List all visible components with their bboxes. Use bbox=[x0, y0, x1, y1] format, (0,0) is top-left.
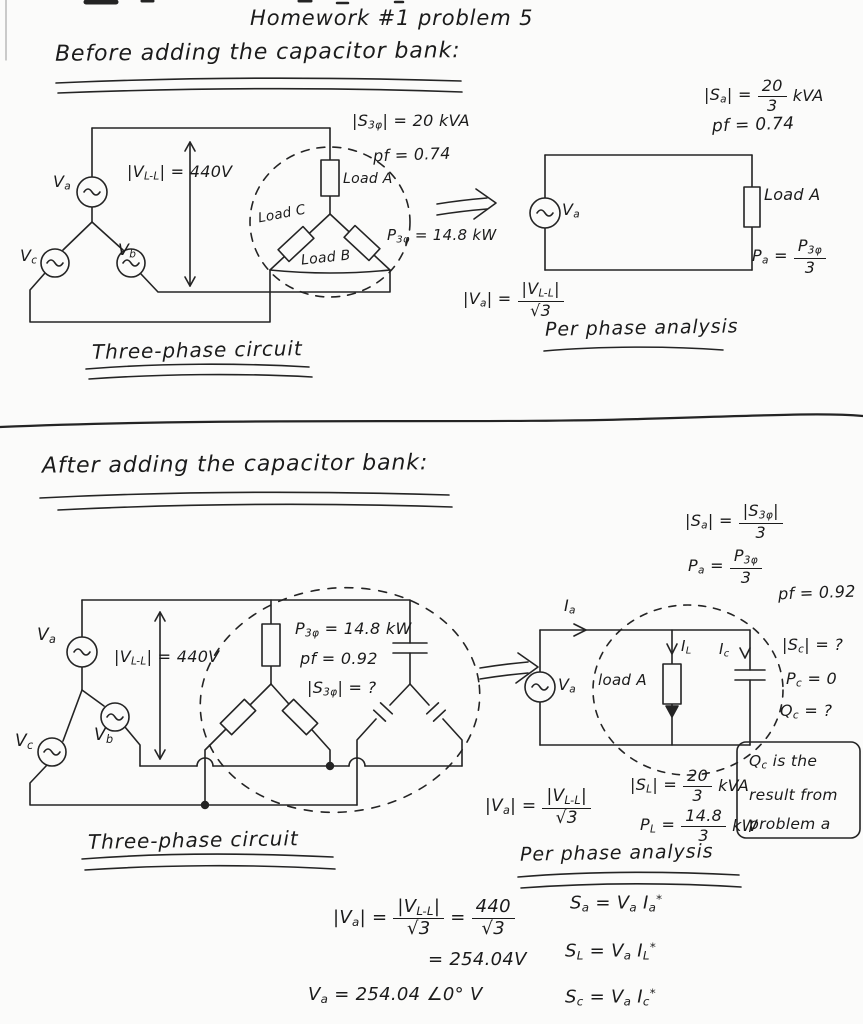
eq-sa: Sa = Va Ia* bbox=[570, 893, 662, 915]
fraction: |VL-L|√3 bbox=[518, 281, 564, 320]
label-va-source: Va bbox=[558, 676, 576, 696]
label-va: Va bbox=[37, 626, 56, 647]
label-p3p: P3φ = 14.8 kW bbox=[295, 620, 412, 640]
eq-lhs: |Va| = bbox=[463, 290, 512, 310]
label-vb: Vb bbox=[118, 241, 136, 261]
label-ic: Ic bbox=[719, 641, 729, 660]
ac-source-va-icon bbox=[525, 672, 555, 702]
eq-sa-after: |Sa| = |S3φ|3 bbox=[685, 503, 789, 542]
section-heading-before: Before adding the capacitor bank: bbox=[55, 38, 461, 67]
eq-va-phasor: Va = 254.04 ∠0° V bbox=[308, 985, 483, 1007]
eq-lhs: PL = bbox=[640, 816, 675, 836]
note-line: Qc is the bbox=[749, 747, 838, 781]
implies-arrow-icon bbox=[437, 189, 496, 219]
load-a-symbol bbox=[744, 187, 760, 227]
eq-sa-before: |Sa| = 203 kVA bbox=[704, 78, 824, 115]
capacitor-symbol bbox=[393, 643, 427, 653]
eq-va: |Va| = |VL-L|√3 bbox=[463, 281, 570, 320]
label-qc: Qc = ? bbox=[780, 702, 832, 722]
ac-source-vc-icon bbox=[41, 249, 69, 277]
eq-lhs: |Sa| = bbox=[685, 512, 733, 532]
eq-lhs: Pa = bbox=[752, 247, 788, 267]
capacitor-symbol bbox=[735, 670, 765, 680]
label-pf: pf = 0.92 bbox=[300, 650, 378, 668]
scanned-homework-page: Homework #1 problem 5 Before adding the … bbox=[0, 0, 863, 1024]
section-heading-after: After adding the capacitor bank: bbox=[42, 450, 428, 479]
label-pf: pf = 0.74 bbox=[712, 115, 795, 137]
fraction: |VL-L|√3 bbox=[542, 788, 591, 827]
eq-pl: PL = 14.83 kW bbox=[640, 808, 758, 845]
voltage-measure-arrow bbox=[155, 612, 165, 759]
eq-va: |Va| = |VL-L|√3 bbox=[485, 788, 597, 827]
eq-lhs: |SL| = bbox=[630, 776, 677, 796]
eq-va-result: = 254.04V bbox=[428, 950, 527, 971]
caption-three-phase: Three-phase circuit bbox=[88, 827, 299, 854]
callout-note: Qc is the result from problem a bbox=[749, 747, 838, 839]
three-phase-circuit-before bbox=[30, 128, 410, 322]
eq-sc: Sc = Va Ic* bbox=[565, 987, 656, 1009]
label-vb: Vb bbox=[94, 726, 113, 747]
fraction: P3φ3 bbox=[730, 548, 762, 587]
eq-sl: |SL| = 203 kVA bbox=[630, 768, 749, 805]
ic-arrowhead bbox=[740, 648, 750, 658]
label-load-a: Load A bbox=[343, 171, 393, 187]
label-pf: pf = 0.92 bbox=[778, 583, 856, 604]
label-ia: Ia bbox=[564, 597, 576, 617]
il-arrowhead bbox=[666, 706, 678, 717]
eq-unit: kVA bbox=[793, 87, 824, 105]
fraction: 203 bbox=[683, 768, 712, 805]
eq-lhs: |Va| = bbox=[485, 797, 536, 818]
ac-source-va-icon bbox=[530, 198, 560, 228]
eq-pa-after: Pa = P3φ3 bbox=[688, 548, 768, 587]
label-va: Va bbox=[53, 173, 71, 193]
label-vc: Vc bbox=[20, 247, 37, 267]
label-il: IL bbox=[681, 638, 692, 657]
label-va-source: Va bbox=[562, 201, 580, 221]
fraction: |VL-L|√3 bbox=[393, 898, 444, 939]
label-vll: |VL-L| = 440V bbox=[114, 648, 219, 668]
note-line: result from bbox=[749, 781, 838, 810]
eq-unit: kW bbox=[732, 817, 758, 835]
fraction: P3φ3 bbox=[794, 238, 826, 277]
capacitor-symbol bbox=[427, 703, 446, 721]
junction-dot bbox=[202, 802, 209, 809]
eq-va-calc: |Va| = |VL-L|√3 = 440√3 bbox=[333, 898, 521, 939]
load-a-symbol bbox=[321, 160, 339, 196]
label-pc: Pc = 0 bbox=[786, 670, 837, 690]
label-pf: pf = 0.74 bbox=[373, 145, 451, 166]
ac-source-vc-icon bbox=[38, 738, 66, 766]
label-s3p: |S3φ| = ? bbox=[307, 679, 376, 699]
fraction: 203 bbox=[758, 78, 787, 115]
eq-lhs: Pa = bbox=[688, 557, 724, 577]
eq-sl: SL = Va IL* bbox=[565, 941, 656, 963]
load-a-symbol bbox=[663, 664, 681, 704]
note-line: problem a bbox=[749, 810, 838, 839]
capacitor-symbol bbox=[374, 703, 393, 721]
fraction: 14.83 bbox=[681, 808, 726, 845]
load-symbol bbox=[282, 699, 317, 734]
fraction: 440√3 bbox=[472, 898, 515, 939]
label-s3p: |S3φ| = 20 kVA bbox=[352, 112, 470, 132]
caption-per-phase: Per phase analysis bbox=[545, 316, 739, 341]
fraction: |S3φ|3 bbox=[739, 503, 783, 542]
eq-unit: kVA bbox=[718, 777, 749, 795]
dashed-load-group-outline bbox=[189, 574, 491, 826]
junction-dot bbox=[327, 763, 334, 770]
label-vc: Vc bbox=[15, 732, 33, 753]
load-symbol bbox=[262, 624, 280, 666]
ac-source-va-icon bbox=[77, 177, 107, 207]
three-phase-circuit-after bbox=[30, 574, 491, 826]
label-vll: |VL-L| = 440V bbox=[127, 163, 232, 183]
caption-per-phase: Per phase analysis bbox=[520, 841, 714, 866]
load-symbol bbox=[220, 699, 255, 734]
label-load-a: Load A bbox=[764, 186, 821, 204]
page-title: Homework #1 problem 5 bbox=[250, 6, 533, 30]
label-p3p: P3φ = 14.8 kW bbox=[387, 227, 497, 246]
eq-lhs: |Sa| = bbox=[704, 86, 752, 106]
ac-source-va-icon bbox=[67, 637, 97, 667]
eq-pa: Pa = P3φ3 bbox=[752, 238, 832, 277]
label-load-a: load A bbox=[598, 672, 647, 689]
eq-lhs: |Va| = bbox=[333, 908, 387, 930]
equals-sign: = bbox=[450, 908, 465, 929]
label-sc: |Sc| = ? bbox=[782, 636, 843, 656]
caption-three-phase: Three-phase circuit bbox=[92, 337, 303, 364]
